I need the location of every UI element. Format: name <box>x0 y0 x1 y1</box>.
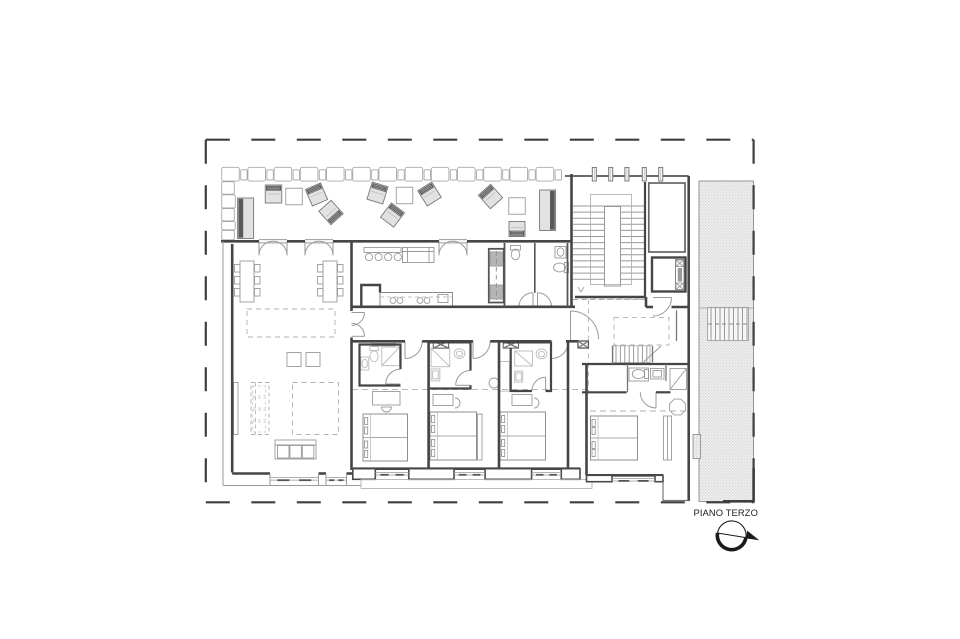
svg-text:PIANO TERZO: PIANO TERZO <box>694 507 758 518</box>
